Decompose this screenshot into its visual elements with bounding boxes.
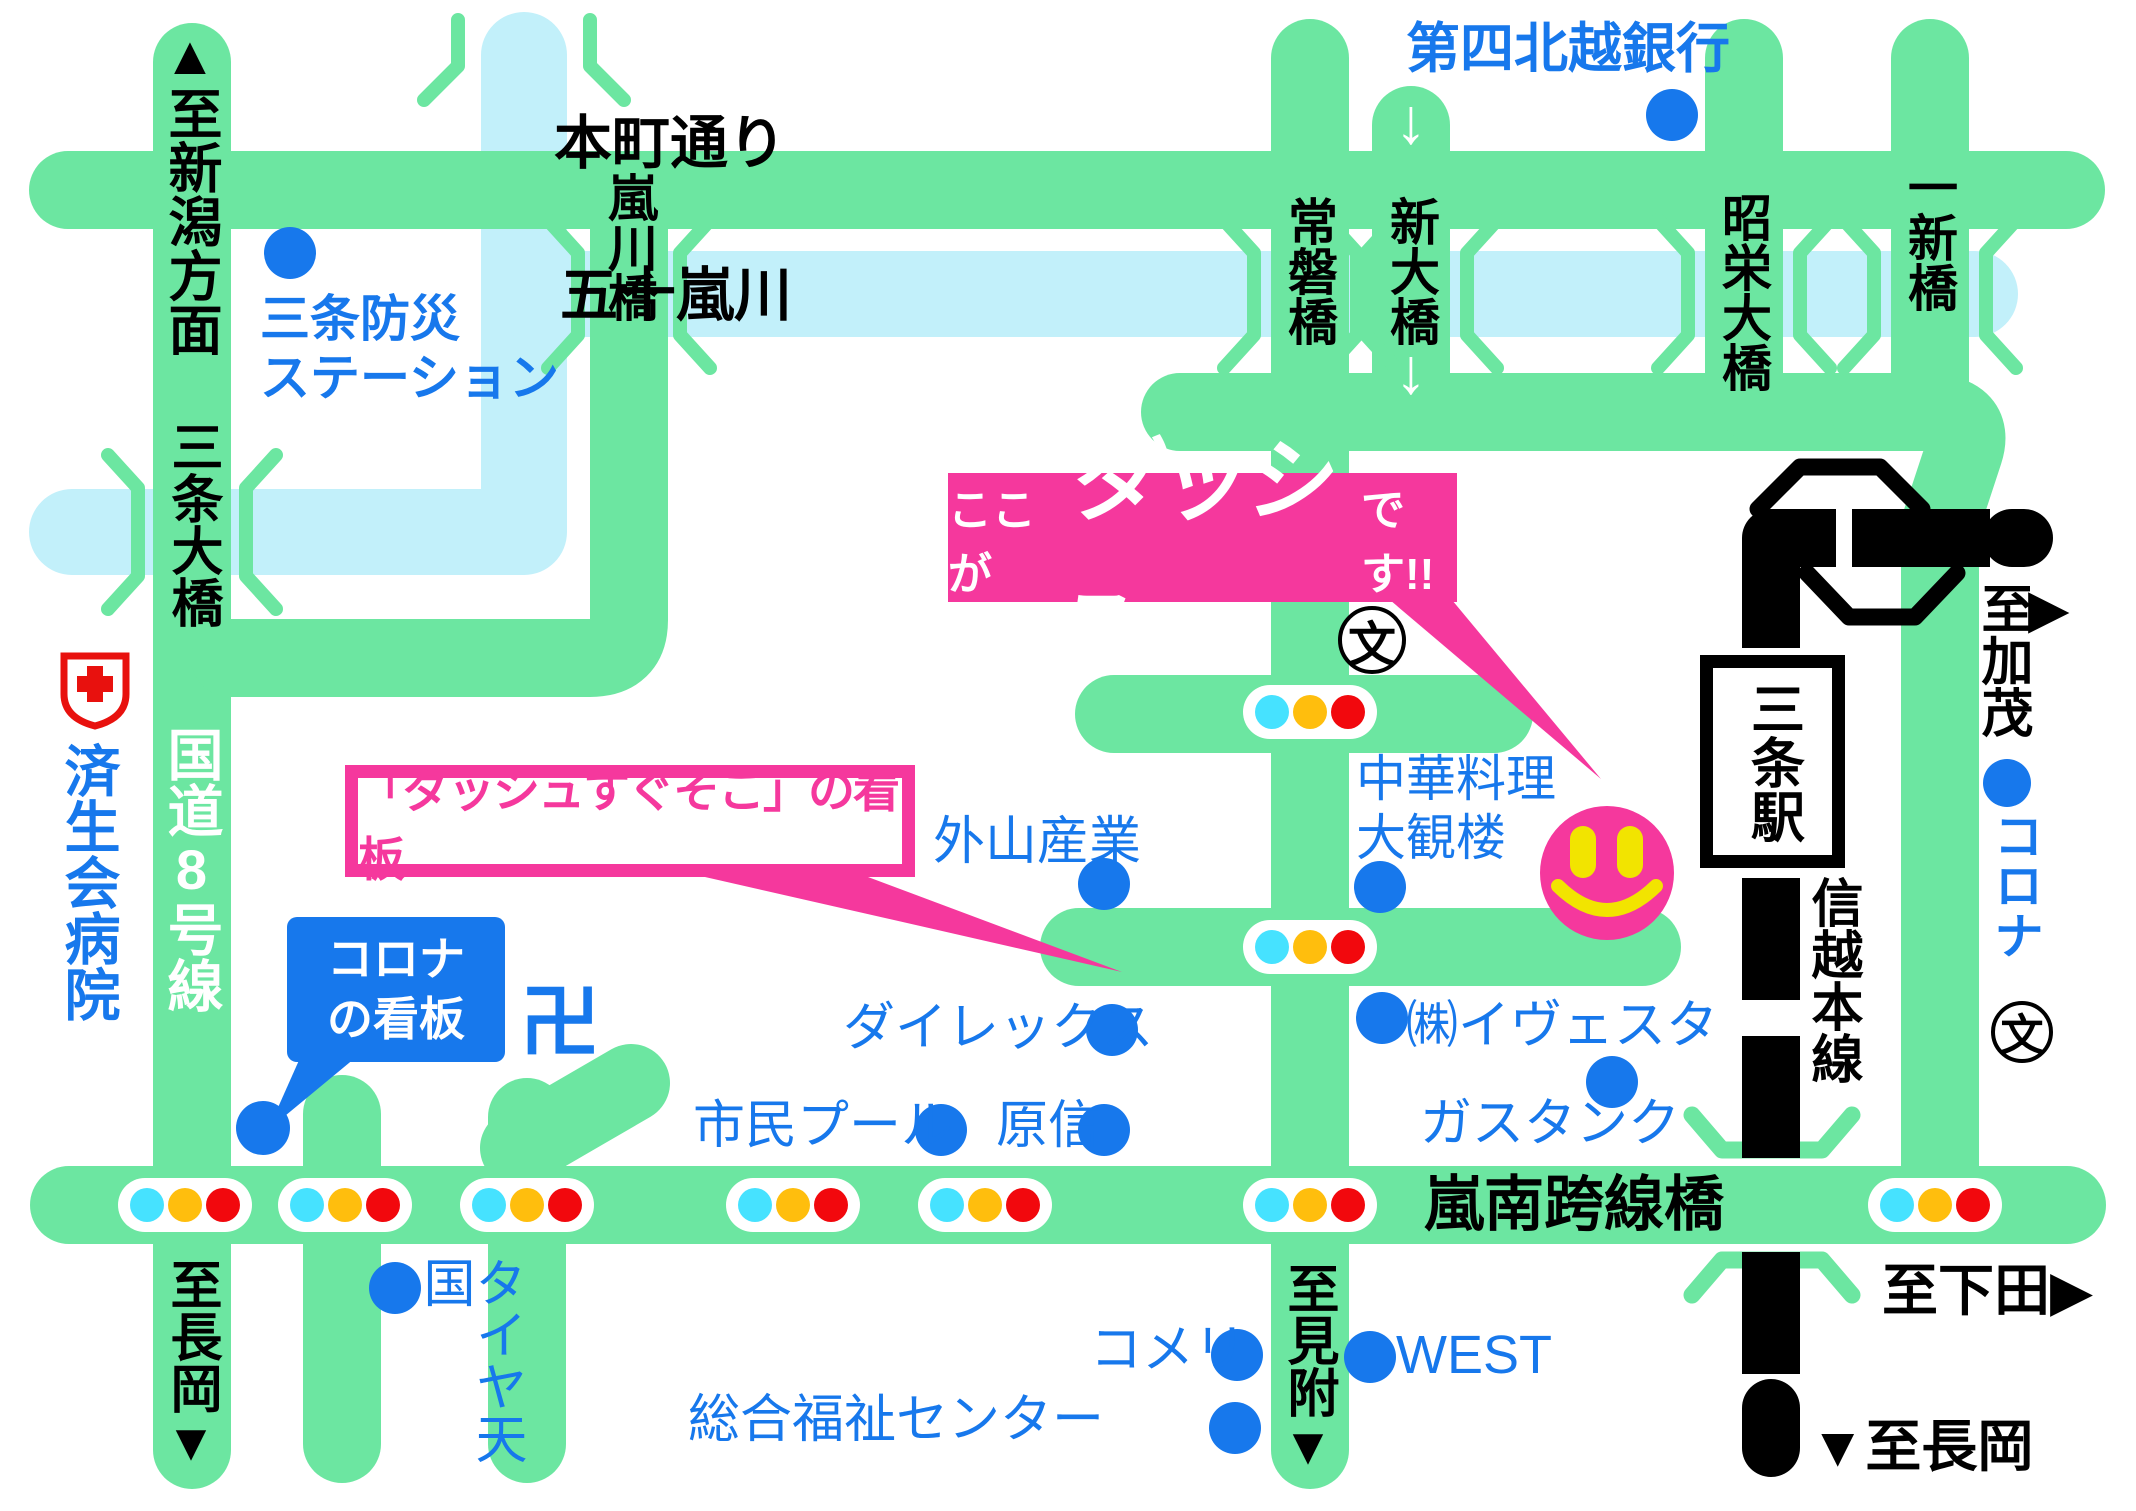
to-kamo: 至加茂 [1976, 582, 2028, 738]
dot-corona-sign [236, 1101, 290, 1155]
ivesta: ㈱イヴェスタ [1406, 996, 1718, 1057]
shindai-bridge-down-arrow-top: ↓ [1384, 84, 1438, 158]
dash-callout: ここが ダッシュ です!! [948, 473, 1457, 602]
to-shitada: 至下田▶ [1882, 1258, 2093, 1324]
dash-callout-suffix: です!! [1361, 474, 1457, 602]
traffic-light-icon [726, 1178, 860, 1232]
corona-sign-callout: コロナ の看板 [287, 917, 505, 1062]
traffic-light-icon [1243, 1178, 1377, 1232]
tire-tengoku: タイヤ天国 [418, 1256, 522, 1511]
traffic-light-icon [118, 1178, 252, 1232]
hospital-icon [64, 656, 126, 726]
traffic-light-icon [278, 1178, 412, 1232]
rail-hat-top [1758, 467, 1922, 509]
manji-temple: 卍 [520, 976, 600, 1070]
dot-chuka-taikanro [1354, 861, 1406, 913]
tokiwa-bridge: 常磐橋 [1284, 196, 1334, 346]
dot-ivesta [1356, 992, 1408, 1044]
traffic-light-icon [918, 1178, 1052, 1232]
shindai-bridge: 新大橋 [1386, 196, 1436, 346]
sogo-fukushi-center: 総合福祉センター [688, 1390, 1104, 1451]
dash-nearby-sign-callout: 「ダッシュすぐそこ」の看板 [345, 765, 915, 877]
shinetsu-line: 信越本線 [1806, 876, 1858, 1084]
to-niigata: ▲至新潟方面 [163, 26, 217, 356]
direx: ダイレックス [843, 998, 1153, 1059]
access-map: 三条駅 ここが ダッシュ です!! 「ダッシュすぐそこ」の看板 コロナ の看板 … [0, 0, 2136, 1511]
dash-callout-brand: ダッシュ [1048, 408, 1369, 668]
saiseikai-hospital: 済生会病院 [60, 742, 116, 1022]
smiley-face [1540, 806, 1674, 940]
sanjo-ohashi-bridge: 三条大橋 [166, 420, 218, 628]
shindai-bridge-down-arrow-bottom: ↓ [1384, 334, 1438, 408]
traffic-light-icon [1243, 685, 1377, 739]
west: WEST [1396, 1324, 1552, 1388]
to-nagaoka-left: 至長岡▼ [165, 1258, 217, 1472]
hospital-cross-h [77, 676, 113, 692]
dash-callout-prefix: ここが [948, 474, 1056, 602]
chuka-taikanro: 中華料理 大観楼 [1356, 750, 1556, 868]
isshin-bridge: 一新橋 [1904, 162, 1954, 312]
honcho-dori: 本町通り [554, 110, 786, 178]
corona-right: コロナ [1990, 810, 2040, 960]
route8: 国道8号線 [163, 726, 219, 1013]
traffic-light-icon [460, 1178, 594, 1232]
daishi-hokuetsu-bank: 第四北越銀行 [1406, 18, 1730, 82]
smiley-eye-left [1570, 826, 1596, 878]
toyama-sangyo: 外山産業 [933, 812, 1141, 873]
komeri: コメリ [1090, 1320, 1246, 1381]
shoei-bridge: 昭栄大橋 [1718, 192, 1768, 392]
ransan-overpass: 嵐南跨線橋 [1424, 1170, 1724, 1241]
traffic-light-icon [1868, 1178, 2002, 1232]
sanjo-station-box: 三条駅 [1700, 655, 1845, 868]
bracket-rivertop-left [424, 20, 458, 100]
gas-tank: ガスタンク [1420, 1094, 1680, 1155]
dot-bosai-station [264, 227, 316, 279]
smiley-marker [1540, 806, 1674, 940]
sanjo-station-label: 三条駅 [1746, 681, 1800, 843]
dot-west [1344, 1331, 1396, 1383]
arashikawa-bridge: 嵐川橋 [604, 172, 654, 322]
traffic-light-icon [1243, 920, 1377, 974]
dot-sogo-fukushi-center [1209, 1402, 1261, 1454]
bosai-station: 三条防災 ステーション [260, 290, 559, 408]
to-kamo-arrow: ▶ [2028, 578, 2070, 642]
harashin: 原信 [996, 1096, 1100, 1157]
school-symbol-center: 文 [1338, 606, 1406, 674]
school-symbol-right: 文 [1991, 1001, 2053, 1063]
bracket-rivertop-right [590, 20, 624, 100]
dot-corona-right [1983, 759, 2031, 807]
ikarashi-river: 五十嵐川 [560, 262, 792, 330]
smiley-eye-right [1617, 826, 1643, 878]
dot-daishi-hokuetsu-bank [1646, 89, 1698, 141]
to-nagaoka-right: ▼至長岡 [1810, 1414, 2033, 1480]
shimin-pool: 市民プール [693, 1096, 953, 1157]
to-mitsuke: 至見附▼ [1282, 1262, 1334, 1476]
dot-tire-tengoku [369, 1262, 421, 1314]
